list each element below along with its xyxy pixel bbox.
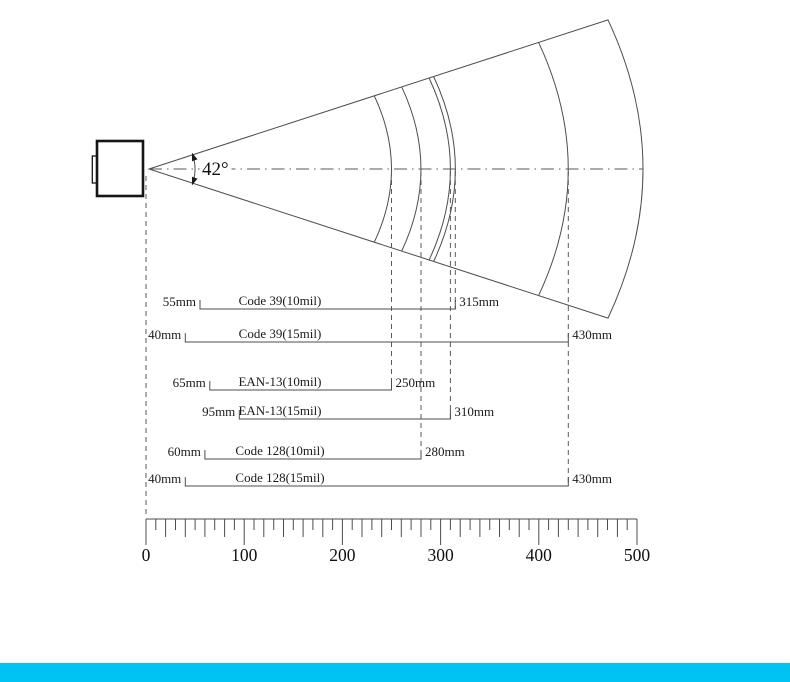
- diagram-svg: 42° 55mmCode 39(10mil)315mm40mmCode 39(1…: [0, 0, 790, 682]
- range-far-label: 280mm: [425, 444, 465, 459]
- range-name-label: Code 39(15mil): [239, 326, 322, 341]
- range-name-label: Code 39(10mil): [239, 293, 322, 308]
- guide-lines: [146, 171, 568, 517]
- range-name-label: EAN-13(10mil): [238, 374, 321, 389]
- range-near-label: 40mm: [148, 327, 181, 342]
- range-bar: 65mmEAN-13(10mil)250mm: [173, 374, 436, 390]
- range-far-label: 315mm: [459, 294, 499, 309]
- ruler-unit-label: 400: [526, 545, 553, 565]
- range-far-label: 250mm: [396, 375, 436, 390]
- range-near-label: 60mm: [168, 444, 201, 459]
- range-far-label: 430mm: [572, 471, 612, 486]
- ruler-unit-label: 500: [624, 545, 651, 565]
- range-near-label: 65mm: [173, 375, 206, 390]
- range-far-label: 310mm: [454, 404, 494, 419]
- range-bars: 55mmCode 39(10mil)315mm40mmCode 39(15mil…: [148, 293, 612, 486]
- range-near-label: 55mm: [163, 294, 196, 309]
- range-bar: 40mmCode 128(15mil)430mm: [148, 470, 612, 486]
- range-name-label: Code 128(15mil): [235, 470, 324, 485]
- ruler-unit-label: 200: [329, 545, 356, 565]
- range-name-label: EAN-13(15mil): [238, 403, 321, 418]
- ruler-unit-label: 100: [231, 545, 258, 565]
- range-far-label: 430mm: [572, 327, 612, 342]
- angle-label: 42°: [202, 159, 229, 180]
- range-near-label: 95mm: [202, 404, 235, 419]
- range-bar: 60mmCode 128(10mil)280mm: [168, 443, 465, 459]
- range-bar: 40mmCode 39(15mil)430mm: [148, 326, 612, 342]
- ruler-unit-label: 300: [427, 545, 454, 565]
- distance-ruler: 0100200300400500: [142, 519, 651, 565]
- range-near-label: 40mm: [148, 471, 181, 486]
- scanner-body: [97, 141, 143, 196]
- footer-accent-bar: [0, 663, 790, 682]
- range-name-label: Code 128(10mil): [235, 443, 324, 458]
- ruler-unit-label: 0: [142, 545, 151, 565]
- scan-range-diagram: 42° 55mmCode 39(10mil)315mm40mmCode 39(1…: [0, 0, 790, 682]
- range-bar: 55mmCode 39(10mil)315mm: [163, 293, 499, 309]
